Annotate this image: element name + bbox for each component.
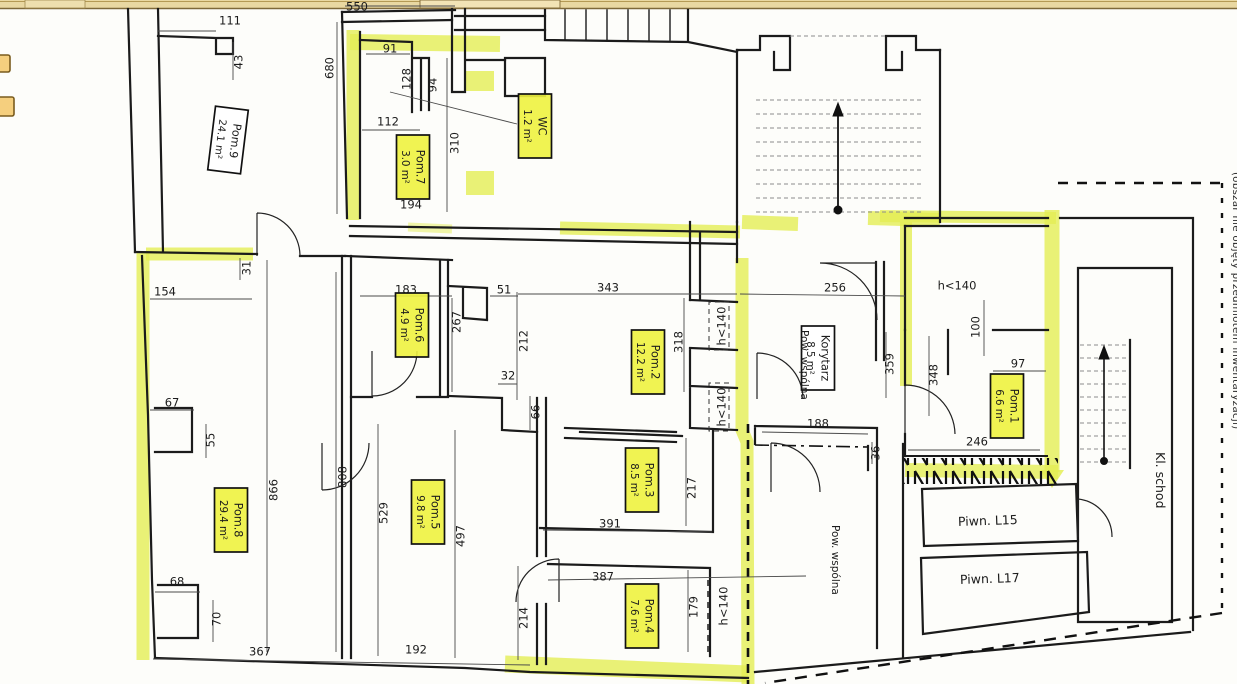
dimension-label: 32 bbox=[501, 369, 516, 383]
dimension-label: 391 bbox=[599, 517, 621, 531]
room-label-piwn-l15: Piwn. L15 bbox=[958, 512, 1018, 529]
dimension-label: 100 bbox=[969, 316, 983, 338]
svg-text:367: 367 bbox=[249, 645, 271, 659]
svg-text:348: 348 bbox=[927, 364, 941, 386]
dimension-label: 112 bbox=[377, 115, 399, 129]
svg-text:9.8 m²: 9.8 m² bbox=[414, 495, 425, 528]
svg-text:94: 94 bbox=[426, 78, 440, 93]
room-label-pom2: Pom.212.2 m² bbox=[632, 330, 665, 394]
party-wall-hatch bbox=[903, 456, 1058, 484]
svg-text:68: 68 bbox=[170, 575, 185, 589]
svg-text:97: 97 bbox=[1011, 357, 1026, 371]
top-scan-band bbox=[0, 0, 1237, 9]
svg-text:70: 70 bbox=[210, 612, 224, 627]
room-label-pom4: Pom.47.6 m² bbox=[626, 584, 659, 648]
stair-up-arrow bbox=[833, 103, 843, 214]
svg-text:529: 529 bbox=[377, 502, 391, 524]
dimension-label: 497 bbox=[454, 525, 468, 547]
floor-plan-canvas: 5501114368091128941123101941543118351343… bbox=[0, 0, 1237, 684]
band-segment bbox=[420, 0, 560, 8]
svg-text:343: 343 bbox=[597, 281, 619, 295]
svg-text:4.9 m²: 4.9 m² bbox=[398, 308, 409, 341]
dimension-label: 866 bbox=[267, 479, 281, 501]
dimension-label: 51 bbox=[497, 283, 512, 297]
boundary-dashed bbox=[708, 183, 1222, 684]
dimension-label: 267 bbox=[450, 311, 464, 333]
svg-text:Pom.4: Pom.4 bbox=[643, 599, 656, 634]
band-segment bbox=[25, 0, 85, 8]
svg-text:66: 66 bbox=[529, 405, 543, 420]
svg-text:217: 217 bbox=[685, 477, 699, 499]
svg-text:310: 310 bbox=[448, 132, 462, 154]
dimension-label: 343 bbox=[597, 281, 619, 295]
svg-text:32: 32 bbox=[501, 369, 516, 383]
svg-text:h<140: h<140 bbox=[938, 279, 977, 293]
pow-wspolna-label-2: Pow. wspólna bbox=[829, 525, 841, 595]
svg-text:112: 112 bbox=[377, 115, 399, 129]
svg-text:1.2 m²: 1.2 m² bbox=[521, 109, 532, 142]
room-label-pom6: Pom.64.9 m² bbox=[396, 293, 429, 357]
page-marker-icon bbox=[0, 55, 10, 72]
svg-text:497: 497 bbox=[454, 525, 468, 547]
svg-text:188: 188 bbox=[807, 417, 829, 431]
dimension-label: 36 bbox=[869, 446, 883, 461]
dimension-label: 91 bbox=[383, 42, 398, 56]
room-label-pom8: Pom.829.4 m² bbox=[215, 488, 248, 552]
stair-top-treads bbox=[756, 36, 922, 212]
dimension-label: 192 bbox=[405, 643, 427, 657]
dimension-label: 97 bbox=[1011, 357, 1026, 371]
dimension-label: 212 bbox=[517, 330, 531, 352]
dimension-label: 348 bbox=[927, 364, 941, 386]
dimension-label: 128 bbox=[400, 68, 414, 90]
room-label-pom9: Pom.924.1 m² bbox=[208, 106, 249, 174]
svg-text:WC: WC bbox=[536, 117, 549, 136]
dimension-layer: 5501114368091128941123101941543118351343… bbox=[154, 0, 1025, 659]
svg-text:128: 128 bbox=[400, 68, 414, 90]
dimension-label: 188 bbox=[807, 417, 829, 431]
room-label-kl-schod: Kl. schod bbox=[1153, 452, 1168, 509]
dimension-label: 70 bbox=[210, 612, 224, 627]
svg-text:100: 100 bbox=[969, 316, 983, 338]
dimension-label: 367 bbox=[249, 645, 271, 659]
dimension-label: 256 bbox=[824, 281, 846, 295]
dimension-label: 94 bbox=[426, 78, 440, 93]
dimension-label: 179 bbox=[687, 596, 701, 618]
dimension-label: 680 bbox=[323, 57, 337, 79]
dimension-label: 154 bbox=[154, 285, 176, 299]
svg-text:387: 387 bbox=[592, 570, 614, 584]
dimension-label: 217 bbox=[685, 477, 699, 499]
svg-text:Pom.3: Pom.3 bbox=[643, 463, 656, 498]
svg-text:3.0 m²: 3.0 m² bbox=[399, 150, 410, 183]
svg-text:51: 51 bbox=[497, 283, 512, 297]
dimension-label: 387 bbox=[592, 570, 614, 584]
svg-text:7.6 m²: 7.6 m² bbox=[628, 599, 639, 632]
room-label-pom5: Pom.59.8 m² bbox=[412, 480, 445, 544]
svg-text:36: 36 bbox=[869, 446, 883, 461]
dimension-label: 318 bbox=[672, 331, 686, 353]
dimension-label: 67 bbox=[165, 396, 180, 410]
dimension-label: 529 bbox=[377, 502, 391, 524]
svg-text:Pom.8: Pom.8 bbox=[232, 503, 245, 538]
scanned-floor-plan-page: 5501114368091128941123101941543118351343… bbox=[0, 0, 1237, 684]
svg-text:214: 214 bbox=[517, 607, 531, 629]
svg-text:29.4 m²: 29.4 m² bbox=[217, 500, 228, 540]
svg-text:391: 391 bbox=[599, 517, 621, 531]
svg-text:866: 866 bbox=[267, 479, 281, 501]
svg-text:111: 111 bbox=[219, 14, 241, 28]
svg-text:154: 154 bbox=[154, 285, 176, 299]
svg-text:359: 359 bbox=[883, 353, 897, 375]
dimension-label: h<140 bbox=[717, 587, 731, 626]
svg-text:h<140: h<140 bbox=[715, 388, 729, 427]
svg-text:6.6 m²: 6.6 m² bbox=[993, 389, 1004, 422]
svg-text:318: 318 bbox=[672, 331, 686, 353]
svg-text:Pom.5: Pom.5 bbox=[429, 495, 442, 530]
svg-text:680: 680 bbox=[323, 57, 337, 79]
dimension-label: h<140 bbox=[938, 279, 977, 293]
dimension-label: 359 bbox=[883, 353, 897, 375]
dimension-label: 68 bbox=[170, 575, 185, 589]
svg-text:Korytarz: Korytarz bbox=[819, 335, 832, 382]
svg-text:550: 550 bbox=[346, 0, 368, 14]
room-label-piwn-l17: Piwn. L17 bbox=[960, 570, 1020, 587]
dimension-label: 310 bbox=[448, 132, 462, 154]
svg-text:192: 192 bbox=[405, 643, 427, 657]
page-marker-icon bbox=[0, 97, 14, 116]
svg-text:808: 808 bbox=[336, 466, 350, 488]
svg-text:31: 31 bbox=[240, 261, 254, 276]
svg-text:179: 179 bbox=[687, 596, 701, 618]
boundary-note-text: (obszar nie objęty przedmiotem inwentary… bbox=[1230, 172, 1237, 430]
stair-right-arrow bbox=[1099, 346, 1109, 465]
svg-text:Pom.1: Pom.1 bbox=[1008, 389, 1021, 424]
svg-text:Pom.7: Pom.7 bbox=[414, 150, 427, 185]
svg-text:Pom.2: Pom.2 bbox=[649, 345, 662, 380]
dimension-label: 214 bbox=[517, 607, 531, 629]
dimension-label: 55 bbox=[204, 433, 218, 448]
svg-text:55: 55 bbox=[204, 433, 218, 448]
dimension-label: 66 bbox=[529, 405, 543, 420]
svg-text:246: 246 bbox=[966, 435, 988, 449]
svg-text:212: 212 bbox=[517, 330, 531, 352]
svg-text:67: 67 bbox=[165, 396, 180, 410]
svg-text:256: 256 bbox=[824, 281, 846, 295]
dimension-label: h<140 bbox=[709, 383, 729, 431]
svg-text:Pom.6: Pom.6 bbox=[413, 308, 426, 343]
dimension-label: 31 bbox=[240, 261, 254, 276]
svg-text:12.2 m²: 12.2 m² bbox=[634, 342, 645, 382]
svg-text:8.5 m²: 8.5 m² bbox=[628, 463, 639, 496]
room-label-pom1: Pom.16.6 m² bbox=[991, 374, 1024, 438]
dimension-label: 808 bbox=[336, 466, 350, 488]
dimension-label: h<140 bbox=[709, 302, 729, 350]
room-label-pom3: Pom.38.5 m² bbox=[626, 448, 659, 512]
dimension-label: 246 bbox=[966, 435, 988, 449]
pow-wspolna-label-1: Pow. wspólna bbox=[798, 330, 810, 400]
dimension-label: 111 bbox=[219, 14, 241, 28]
room-label-wc: WC1.2 m² bbox=[519, 94, 552, 158]
svg-text:43: 43 bbox=[232, 55, 246, 70]
svg-text:91: 91 bbox=[383, 42, 398, 56]
room-label-pom7: Pom.73.0 m² bbox=[397, 135, 430, 199]
svg-text:h<140: h<140 bbox=[717, 587, 731, 626]
dimension-label: 550 bbox=[346, 0, 368, 14]
svg-text:267: 267 bbox=[450, 311, 464, 333]
dimension-label: 43 bbox=[232, 55, 246, 70]
svg-text:h<140: h<140 bbox=[715, 307, 729, 346]
